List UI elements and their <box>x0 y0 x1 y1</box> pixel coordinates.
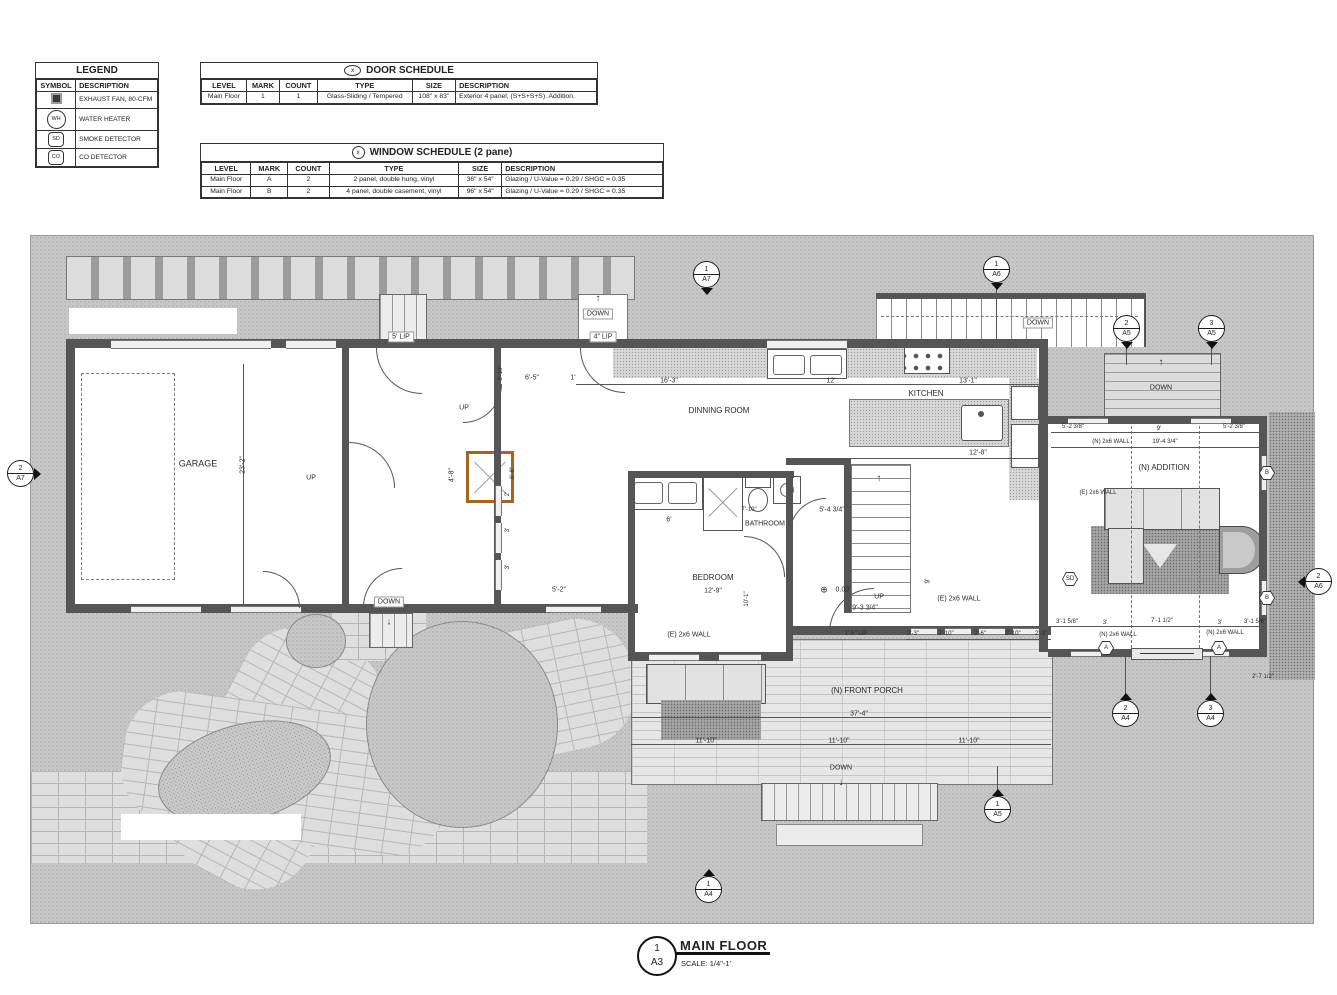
plan-label: (E) 2x6 WALL <box>937 596 980 603</box>
schedule-row: Main FloorB24 panel, double casement, vi… <box>202 186 663 197</box>
schedule-cell: 2 <box>288 175 330 186</box>
schedule-cell: Main Floor <box>202 175 251 186</box>
plan-label: 1'-5" LIP <box>845 631 868 637</box>
schedule-cell: B <box>251 186 288 197</box>
plan-label: 2'-10" <box>1005 631 1020 637</box>
legend-table: SYMBOLDESCRIPTION EXHAUST FAN, 80-CFMWHW… <box>36 79 158 167</box>
plan-label: 3' <box>1218 620 1222 626</box>
title-marker: 1 A3 <box>637 936 677 976</box>
plan-label: ↑ <box>596 294 601 304</box>
schedule-row: Main FloorA22 panel, double hung, vinyl3… <box>202 175 663 186</box>
plan-label: 5'-2 3/8" <box>1062 424 1084 430</box>
plan-label: 23'-2" <box>240 456 247 474</box>
section-marker-2-A7: 2A7 <box>7 460 34 487</box>
schedule-cell: Glazing / U-Value = 0.29 / SHGC = 0.35 <box>502 186 663 197</box>
bedroom-west-wall <box>628 471 635 661</box>
plan-label: 6' <box>666 517 671 524</box>
schedule-cell: 2 panel, double hung, vinyl <box>329 175 458 186</box>
section-marker-1-A5: 1A5 <box>984 796 1011 823</box>
plan-label: ↑ <box>877 474 882 484</box>
plan-label: 3' <box>505 565 511 569</box>
column-header: SYMBOL <box>37 80 76 92</box>
plan-label: 16'-3" <box>660 378 678 385</box>
dim-line <box>1051 626 1263 627</box>
plan-label: UP <box>874 594 884 601</box>
schedule-cell: A <box>251 175 288 186</box>
plan-label: DINNING ROOM <box>689 407 750 415</box>
column-header: SIZE <box>412 80 455 92</box>
legend-title: LEGEND <box>36 63 158 79</box>
refrigerator <box>1011 386 1039 420</box>
plan-label: 3' <box>505 528 511 532</box>
lawn-patch <box>286 614 346 668</box>
window-tag-icon: x <box>352 146 365 159</box>
dim-line <box>1051 432 1263 433</box>
porch-steps <box>761 783 938 821</box>
dining-window <box>495 560 502 590</box>
lawn-patch <box>366 621 558 828</box>
plan-label: 9' <box>925 578 932 583</box>
garage-parking-outline <box>81 373 175 580</box>
plan-label: 19'-4 3/4" <box>1152 439 1177 445</box>
schedule-cell: 96" x 54" <box>459 186 502 197</box>
legend-description: SMOKE DETECTOR <box>76 131 158 149</box>
plan-label: ↓ <box>387 618 392 627</box>
window-schedule-table: LEVELMARKCOUNTTYPESIZEDESCRIPTION Main F… <box>201 162 663 198</box>
rug-chevron <box>1143 544 1177 568</box>
projection-line <box>1199 426 1200 648</box>
legend: LEGEND SYMBOLDESCRIPTION EXHAUST FAN, 80… <box>35 62 159 168</box>
plan-label: 5'-2 3/8" <box>1223 424 1245 430</box>
column-header: SIZE <box>459 163 502 175</box>
plan-label: 2'-7 1/2" <box>1252 674 1274 680</box>
window-rows: Main FloorA22 panel, double hung, vinyl3… <box>202 175 663 198</box>
plan-label: 3'-1 5/8" <box>1244 619 1266 625</box>
door-header-row: LEVELMARKCOUNTTYPESIZEDESCRIPTION <box>202 80 597 92</box>
plan-label: 4" LIP <box>590 332 617 343</box>
bedroom-window <box>649 654 699 661</box>
plan-label: 12' <box>826 378 835 385</box>
legend-row: EXHAUST FAN, 80-CFM <box>37 92 158 109</box>
plan-label: 5'-2" <box>552 587 566 594</box>
sliding-door <box>1131 648 1203 660</box>
plan-label: 9' <box>1157 426 1161 432</box>
kitchen-addition-wall <box>1039 339 1048 652</box>
plan-label: UP <box>459 405 469 412</box>
section-marker-1-A6: 1A6 <box>983 256 1010 283</box>
plan-label: 7'-10" <box>741 507 756 513</box>
schedule-row: Main Floor11Glass-Sliding / Tempered108"… <box>202 92 597 103</box>
column-header: COUNT <box>288 163 330 175</box>
schedule-cell: 4 panel, double casement, vinyl <box>329 186 458 197</box>
kitchen-sink <box>767 349 847 379</box>
plan-label: DOWN <box>1150 385 1172 392</box>
column-header: LEVEL <box>202 163 251 175</box>
schedule-cell: Glass-Sliding / Tempered <box>317 92 412 103</box>
schedule-cell: 2 <box>288 186 330 197</box>
section-marker-2-A5: 2A5 <box>1113 315 1140 342</box>
plan-label: BEDROOM <box>692 574 733 582</box>
plan-label: DOWN <box>830 765 852 772</box>
addition-sofa <box>1104 488 1220 530</box>
plan-label: 13'-1" <box>959 378 977 385</box>
plan-label: 2'-3" <box>907 631 919 637</box>
plan-label: 0.00' <box>836 587 851 594</box>
garage-window <box>286 340 336 349</box>
door-schedule-title: x DOOR SCHEDULE <box>201 63 597 79</box>
plan-label: 2' <box>505 492 511 496</box>
west-wall <box>66 339 75 613</box>
legend-header-row: SYMBOLDESCRIPTION <box>37 80 158 92</box>
plan-label: ↑ <box>1159 358 1164 368</box>
section-marker-1-A7: 1A7 <box>693 261 720 288</box>
plan-label: (E) 2x6 WALL <box>667 632 710 639</box>
plan-label: 3'-1 5/8" <box>1056 619 1078 625</box>
fan-symbol-icon <box>51 93 62 104</box>
schedule-cell: Glazing / U-Value = 0.29 / SHGC = 0.35 <box>502 175 663 186</box>
wh-symbol-icon: WH <box>47 110 66 129</box>
plan-label: (N) 2x6 WALL <box>1206 630 1243 636</box>
section-marker-3-A4: 3A4 <box>1197 700 1224 727</box>
window-schedule: x WINDOW SCHEDULE (2 pane) LEVELMARKCOUN… <box>200 143 664 199</box>
door-schedule: x DOOR SCHEDULE LEVELMARKCOUNTTYPESIZEDE… <box>200 62 598 105</box>
garage-partition <box>342 339 349 613</box>
column-header: MARK <box>246 80 279 92</box>
section-marker-2-A4: 2A4 <box>1112 700 1139 727</box>
window-schedule-title-text: WINDOW SCHEDULE (2 pane) <box>370 147 513 158</box>
legend-row: WHWATER HEATER <box>37 109 158 131</box>
projection-line <box>1131 426 1132 648</box>
plan-label: DOWN <box>583 309 613 320</box>
plan-label: 7'-1 1/2" <box>1151 618 1173 624</box>
column-header: TYPE <box>329 163 458 175</box>
plan-label: DOWN <box>1023 318 1053 329</box>
schedule-cell: 1 <box>279 92 317 103</box>
plan-label: 12'-8" <box>969 450 987 457</box>
dim-line <box>243 364 244 604</box>
column-header: COUNT <box>279 80 317 92</box>
plan-label: 1' <box>570 375 575 382</box>
plan-label: ↓ <box>839 778 844 788</box>
column-header: DESCRIPTION <box>76 80 158 92</box>
dim-line <box>1051 447 1263 448</box>
plan: GARAGE23'-2"UPDOWN↓5' LIPDOWN↑4" LIPUP6'… <box>30 235 1314 924</box>
column-header: DESCRIPTION <box>456 80 597 92</box>
dining-window <box>495 523 502 553</box>
bedroom-window <box>719 654 761 661</box>
yard-label-area <box>121 814 301 840</box>
plan-label: (E) 2x6 WALL <box>1079 490 1116 496</box>
column-header: DESCRIPTION <box>502 163 663 175</box>
plan-label: 6'-5" <box>525 375 539 382</box>
legend-description: WATER HEATER <box>76 109 158 131</box>
schedule-cell: Exterior 4 panel; (S+S+S+S). Addition. <box>456 92 597 103</box>
dim-line <box>821 458 1039 459</box>
addition-chaise <box>1108 528 1144 584</box>
window-schedule-title: x WINDOW SCHEDULE (2 pane) <box>201 144 663 162</box>
shower <box>703 473 743 531</box>
legend-row: SDSMOKE DETECTOR <box>37 131 158 149</box>
island-sink <box>961 405 1003 441</box>
plan-label: UP <box>306 475 316 482</box>
door-schedule-title-text: DOOR SCHEDULE <box>366 65 454 76</box>
plan-label: 2'-10" <box>938 631 953 637</box>
plan-label: 5' LIP <box>388 332 414 343</box>
plan-label: 6'-8" <box>510 467 516 479</box>
addition-south-window <box>1071 651 1101 657</box>
legend-rows: EXHAUST FAN, 80-CFMWHWATER HEATERSDSMOKE… <box>37 92 158 167</box>
legend-description: CO DETECTOR <box>76 149 158 167</box>
section-marker-1-A4: 1A4 <box>695 876 722 903</box>
plan-label: ⊕ <box>820 586 828 595</box>
plan-label: 3' <box>1103 620 1107 626</box>
garage-door-opening <box>111 340 271 349</box>
plan-label: 11'-10" <box>695 738 716 745</box>
legend-row: COCO DETECTOR <box>37 149 158 167</box>
dim-line <box>906 639 1051 640</box>
plan-label: BATHROOM <box>745 521 785 528</box>
dining-window <box>495 486 502 516</box>
driveway-band <box>69 308 237 334</box>
south-window <box>546 606 601 613</box>
plan-label: 11'-10" <box>958 738 979 745</box>
column-header: MARK <box>251 163 288 175</box>
schedule-cell: Main Floor <box>202 92 247 103</box>
schedule-cell: Main Floor <box>202 186 251 197</box>
sd-symbol-icon: SD <box>48 132 64 147</box>
plan-label: (N) 2x6 WALL <box>1099 632 1136 638</box>
porch-sofa <box>646 664 766 704</box>
column-header: TYPE <box>317 80 412 92</box>
plan-label: (N) ADDITION <box>1138 464 1189 472</box>
plan-label: DOWN <box>374 597 404 608</box>
plan-label: 2'-3" <box>1035 631 1047 637</box>
schedule-cell: 36" x 54" <box>459 175 502 186</box>
schedule-cell: 108" x 83" <box>412 92 455 103</box>
plan-label: 2'-6" <box>974 631 986 637</box>
fence-strip <box>66 256 635 300</box>
plan-label: 4'-8" <box>449 468 456 482</box>
plan-label: (N) FRONT PORCH <box>831 687 903 695</box>
schedule-cell: 1 <box>246 92 279 103</box>
co-symbol-icon: CO <box>48 150 64 165</box>
south-window <box>131 606 201 613</box>
plan-label: 37'-4" <box>850 711 868 718</box>
plan-label: 5'-4 3/4" <box>819 507 845 514</box>
plan-label: KITCHEN <box>908 390 943 398</box>
drawing-scale: SCALE: 1/4"-1' <box>681 959 731 968</box>
window-header-row: LEVELMARKCOUNTTYPESIZEDESCRIPTION <box>202 163 663 175</box>
porch-landing <box>776 824 923 846</box>
stove-cooktop <box>904 346 950 374</box>
plan-label: (N) 2x6 WALL <box>1092 439 1129 445</box>
porch-rug <box>661 700 761 740</box>
column-header: LEVEL <box>202 80 247 92</box>
kitchen-window <box>767 340 847 349</box>
east-planting-strip <box>1269 412 1315 680</box>
section-marker-3-A5: 3A5 <box>1198 315 1225 342</box>
title-detail-number: 1 <box>639 944 675 956</box>
plan-label: 3'-10" <box>498 365 504 380</box>
drawing-sheet: LEGEND SYMBOLDESCRIPTION EXHAUST FAN, 80… <box>0 0 1337 995</box>
section-marker-2-A6: 2A6 <box>1305 568 1332 595</box>
plan-label: 12'-9" <box>704 588 722 595</box>
bath-wall <box>628 471 794 478</box>
drawing-title: MAIN FLOOR <box>680 938 767 953</box>
door-rows: Main Floor11Glass-Sliding / Tempered108"… <box>202 92 597 103</box>
bath-vanity <box>629 476 703 510</box>
dim-line <box>631 717 1051 718</box>
plan-label: 11'-10" <box>828 738 849 745</box>
door-tag-icon: x <box>344 65 361 76</box>
stair-dash-line <box>881 316 1138 317</box>
legend-description: EXHAUST FAN, 80-CFM <box>76 92 158 109</box>
pantry-cabinet <box>1011 424 1039 468</box>
plan-label: GARAGE <box>179 460 218 469</box>
title-sheet-number: A3 <box>651 956 663 968</box>
plan-label: 9'-3 3/4" <box>852 605 878 612</box>
plan-label: 10'-1" <box>744 591 750 606</box>
door-schedule-table: LEVELMARKCOUNTTYPESIZEDESCRIPTION Main F… <box>201 79 597 104</box>
hall-wall <box>786 458 846 465</box>
bedroom-east-wall <box>786 471 793 661</box>
